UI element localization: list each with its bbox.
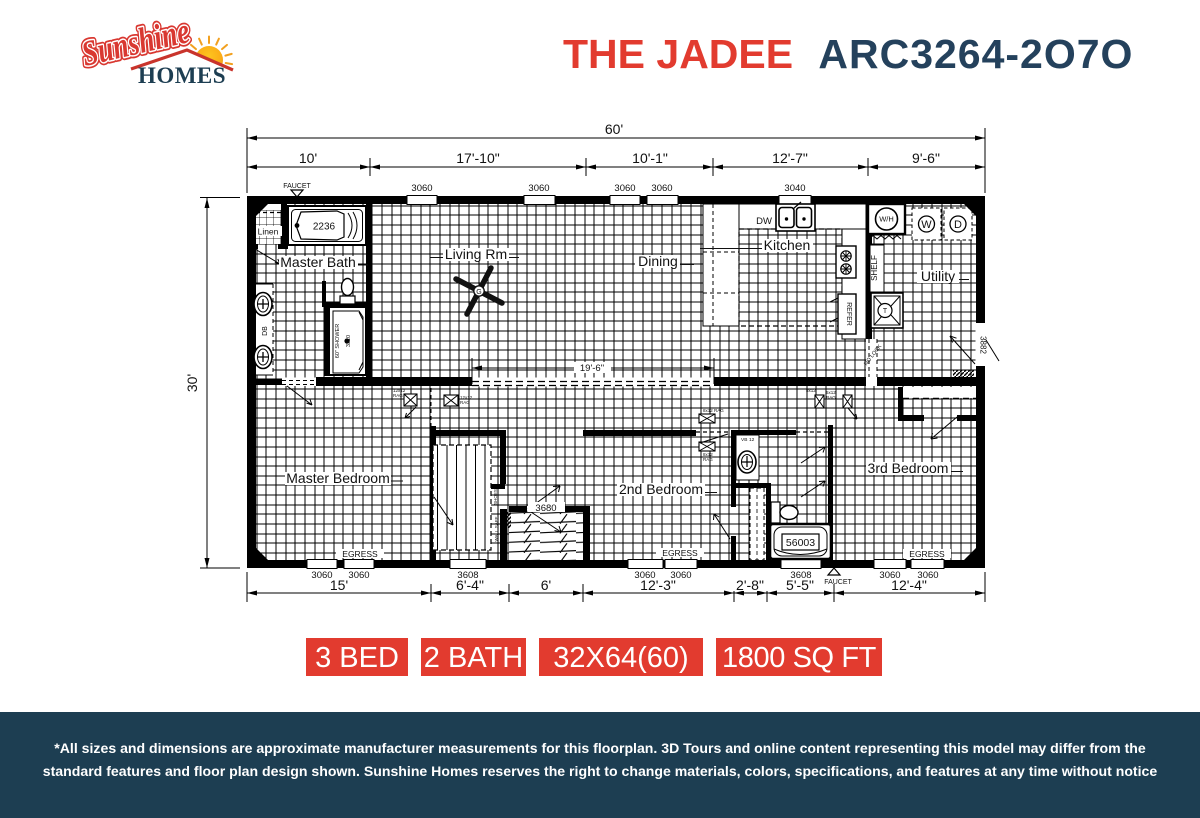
svg-text:56003: 56003 xyxy=(786,537,815,549)
svg-text:10': 10' xyxy=(299,150,317,166)
svg-text:Living Rm: Living Rm xyxy=(445,246,507,262)
svg-text:SHOES: SHOES xyxy=(493,489,498,505)
svg-text:15': 15' xyxy=(330,577,348,593)
svg-text:EGRESS: EGRESS xyxy=(909,549,945,559)
svg-text:12'-4": 12'-4" xyxy=(891,577,927,593)
svg-text:6'-4": 6'-4" xyxy=(456,577,484,593)
svg-text:12'-3": 12'-3" xyxy=(640,577,676,593)
svg-text:9'-6": 9'-6" xyxy=(912,150,940,166)
svg-text:3040: 3040 xyxy=(784,183,805,194)
svg-text:2nd Bedroom: 2nd Bedroom xyxy=(619,481,703,497)
svg-text:Master Bath: Master Bath xyxy=(280,254,355,270)
svg-text:EGRESS: EGRESS xyxy=(342,549,378,559)
svg-text:DW: DW xyxy=(756,216,772,227)
svg-text:60': 60' xyxy=(605,121,623,137)
svg-text:FAUCET: FAUCET xyxy=(283,183,311,190)
svg-text:17'-10": 17'-10" xyxy=(456,150,499,166)
svg-text:FAUCET: FAUCET xyxy=(824,579,852,586)
svg-text:3060: 3060 xyxy=(614,183,635,194)
svg-text:5'-5": 5'-5" xyxy=(786,577,814,593)
svg-text:DB: DB xyxy=(262,326,269,336)
svg-text:Master Bedroom: Master Bedroom xyxy=(286,470,389,486)
svg-text:RAG: RAG xyxy=(460,400,470,405)
svg-text:Kitchen: Kitchen xyxy=(764,237,811,253)
svg-text:Linen: Linen xyxy=(258,227,279,237)
svg-text:WALL SAFE: WALL SAFE xyxy=(494,517,499,542)
svg-text:3310: 3310 xyxy=(346,335,352,347)
svg-text:RAG: RAG xyxy=(826,395,836,400)
svg-text:2'-8": 2'-8" xyxy=(736,577,764,593)
svg-text:W: W xyxy=(921,219,932,231)
svg-text:30': 30' xyxy=(184,374,200,392)
svg-text:W/H: W/H xyxy=(879,215,894,224)
svg-text:10'-1": 10'-1" xyxy=(632,150,668,166)
svg-text:12'-7": 12'-7" xyxy=(772,150,808,166)
svg-text:EGRESS: EGRESS xyxy=(662,548,698,558)
svg-text:8x12: 8x12 xyxy=(806,388,816,393)
svg-text:3060: 3060 xyxy=(651,183,672,194)
svg-text:6': 6' xyxy=(541,577,551,593)
svg-text:3060: 3060 xyxy=(411,183,432,194)
svg-text:RAG: RAG xyxy=(703,457,713,462)
svg-text:HOMES: HOMES xyxy=(138,63,226,88)
svg-text:12: 12 xyxy=(749,437,755,443)
svg-text:60" SHOWER: 60" SHOWER xyxy=(335,324,341,358)
svg-text:2236: 2236 xyxy=(313,222,336,233)
svg-text:REFER: REFER xyxy=(845,302,852,326)
svg-text:RAG: RAG xyxy=(393,393,403,398)
svg-text:SHELF: SHELF xyxy=(870,255,879,281)
svg-text:VB: VB xyxy=(741,437,747,443)
svg-text:T: T xyxy=(883,308,888,315)
svg-text:3rd Bedroom: 3rd Bedroom xyxy=(868,460,949,476)
svg-text:3882: 3882 xyxy=(979,336,988,354)
svg-text:3680: 3680 xyxy=(535,503,556,514)
svg-text:3060: 3060 xyxy=(528,183,549,194)
svg-text:D: D xyxy=(954,219,962,231)
svg-text:Dining: Dining xyxy=(638,253,678,269)
svg-text:Utility: Utility xyxy=(921,268,955,284)
svg-text:G: G xyxy=(476,289,481,296)
svg-text:19'-6": 19'-6" xyxy=(580,363,604,374)
svg-text:8x12 RAG: 8x12 RAG xyxy=(703,408,724,413)
